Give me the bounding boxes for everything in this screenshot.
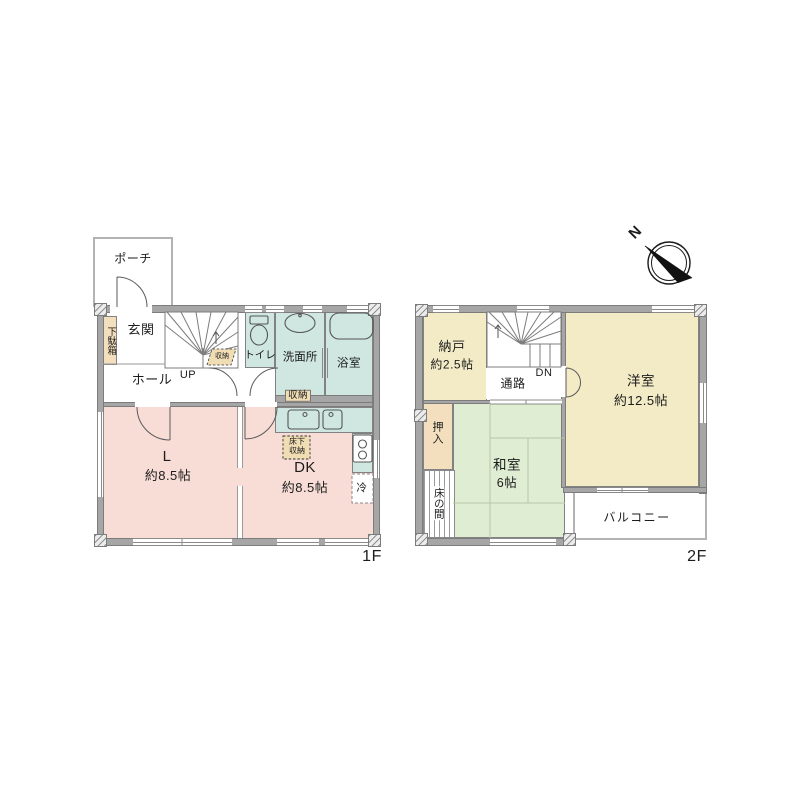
- bathroom-label: 浴室: [337, 358, 361, 371]
- corner-hatch: [415, 410, 426, 421]
- underfloor-line2: 収納: [289, 447, 305, 456]
- window: [699, 383, 707, 423]
- living-size-label: 約8.5帖: [145, 469, 192, 483]
- kitchen-counter-side: [352, 433, 373, 473]
- corner-hatch: [695, 305, 706, 316]
- stairs-down-label: DN: [536, 367, 553, 379]
- doorway-gap: [561, 366, 566, 397]
- dk-name-label: DK: [294, 460, 316, 477]
- storeroom-name-label: 納戸: [438, 340, 465, 354]
- toilet-label: トイレ: [244, 350, 276, 362]
- corner-hatch: [95, 304, 106, 315]
- window: [373, 440, 380, 478]
- lk-opening: [236, 468, 244, 486]
- balcony-label: バルコニー: [603, 511, 670, 524]
- window: [97, 412, 104, 497]
- entrance-label: 玄関: [127, 323, 154, 337]
- porch-area: [93, 237, 173, 307]
- window: [597, 487, 648, 493]
- corner-hatch: [416, 305, 427, 316]
- doorway-gap: [135, 402, 170, 407]
- window: [266, 305, 284, 313]
- window: [490, 538, 556, 546]
- kitchen-counter-top: [275, 407, 373, 433]
- window: [652, 305, 696, 313]
- tokonoma-label: 床の間: [432, 486, 444, 520]
- underfloor-storage-label: 床下 収納: [289, 438, 305, 456]
- compass-icon: [645, 242, 692, 284]
- window: [245, 305, 262, 313]
- corner-hatch: [564, 534, 575, 545]
- corner-hatch: [95, 535, 106, 546]
- stairs-storage-label: 収納: [215, 353, 229, 361]
- stairs-up-label: UP: [180, 369, 196, 381]
- bathroom-area: [325, 312, 373, 396]
- refrigerator-label: 冷: [357, 483, 368, 495]
- doorway-gap: [245, 402, 277, 407]
- stairs-2f: [487, 312, 561, 367]
- doorway-gap: [490, 399, 562, 404]
- dk-size-label: 約8.5帖: [282, 481, 329, 495]
- wall-segment: [373, 305, 380, 546]
- western-room-name-label: 洋室: [627, 375, 655, 390]
- wall-segment: [415, 305, 423, 546]
- corner-hatch: [369, 535, 380, 546]
- doorway-gap: [110, 305, 152, 313]
- western-room-size-label: 約12.5帖: [614, 394, 668, 408]
- window: [325, 538, 372, 546]
- window: [133, 538, 232, 546]
- window: [517, 305, 549, 313]
- window: [433, 305, 459, 313]
- japanese-room-name-label: 和室: [493, 459, 521, 474]
- hall-label: ホール: [132, 373, 173, 387]
- washroom-label: 洗面所: [283, 352, 318, 365]
- japanese-room-size-label: 6帖: [497, 477, 517, 491]
- toilet-door: [250, 368, 278, 396]
- compass-north-label: N: [626, 223, 646, 243]
- window: [277, 538, 319, 546]
- storage-label: 収納: [285, 390, 311, 402]
- floor-plan: ポーチ 下駄箱 玄関 ホール UP 収納 トイレ 洗面所 浴室 収納 L 約8.…: [0, 0, 800, 800]
- floor2-label: 2F: [687, 548, 707, 566]
- shoe-cabinet-label: 下駄箱: [105, 327, 115, 356]
- window: [303, 305, 322, 313]
- floor1-label: 1F: [362, 548, 382, 566]
- corner-hatch: [369, 304, 380, 315]
- passage-label: 通路: [500, 377, 525, 390]
- hall-stairs-door: [209, 368, 237, 396]
- living-name-label: L: [163, 449, 172, 466]
- porch-label: ポーチ: [114, 252, 152, 265]
- doorway-gap: [486, 368, 489, 399]
- corner-hatch: [416, 534, 427, 545]
- closet-label: 押入: [431, 421, 443, 445]
- storeroom-size-label: 約2.5帖: [430, 358, 473, 371]
